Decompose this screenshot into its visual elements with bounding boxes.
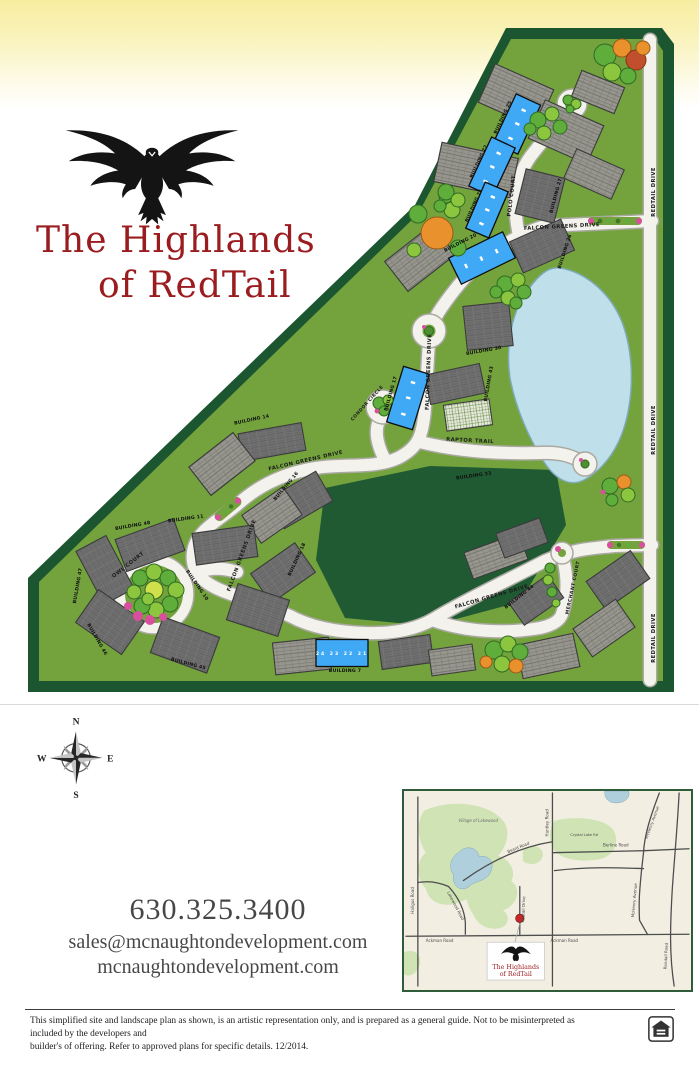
compass-south-label: S [73, 791, 78, 800]
phone-number: 630.325.3400 [18, 893, 418, 927]
contact-block: 630.325.3400 sales@mcnaughtondevelopment… [18, 893, 418, 979]
inset-label-ackman-east: Ackman Road [551, 938, 579, 943]
website-url[interactable]: mcnaughtondevelopment.com [18, 956, 418, 979]
title-line1: The Highlands [36, 220, 316, 261]
inset-label-huntley: Huntley Road [545, 809, 550, 837]
title-line2: of RedTail [36, 263, 366, 308]
inset-callout: The Highlands of RedTail [487, 942, 544, 980]
street-label-redtail-2: REDTAIL DRIVE [651, 405, 657, 455]
compass-rose-icon: N E S W [36, 712, 116, 800]
sales-email[interactable]: sales@mcnaughtondevelopment.com [18, 931, 418, 954]
label-building-7: BUILDING 7 [329, 668, 361, 674]
disclaimer-line1: This simplified site and landscape plan … [30, 1015, 590, 1041]
disclaimer-text: This simplified site and landscape plan … [30, 1015, 590, 1054]
inset-label-haligus: Haligus Road [410, 887, 415, 914]
site-plan-map: 24 23 22 21 [0, 0, 699, 704]
disclaimer-line2: builder's of offering. Refer to approved… [30, 1041, 590, 1054]
eagle-logo-icon [58, 118, 243, 226]
location-inset-map: Village of Lakewood Huntley Road Beard R… [402, 789, 693, 992]
inset-label-crystal-lake: Crystal Lake Rd [570, 833, 598, 837]
section-divider [0, 704, 699, 705]
building7-unit-numbers: 24 23 22 21 [316, 651, 368, 657]
inset-callout-line2: of RedTail [500, 970, 532, 978]
inset-callout-line1: The Highlands [492, 963, 539, 971]
footer-rule [25, 1009, 675, 1010]
compass-east-label: E [107, 755, 113, 765]
compass-north-label: N [73, 718, 80, 728]
flyer-page: { "brand": { "title_line1": "The Highlan… [0, 0, 699, 1080]
inset-label-village: Village of Lakewood [458, 818, 498, 823]
compass-west-label: W [37, 755, 47, 765]
inset-label-redtail: Redtail Drive [520, 896, 526, 923]
inset-label-berline: Berline Road [603, 843, 629, 848]
page-title: The Highlands of RedTail [36, 218, 366, 308]
equal-housing-icon [648, 1016, 674, 1042]
inset-label-ackman-west: Ackman Road [426, 938, 454, 943]
street-label-redtail-3: REDTAIL DRIVE [651, 613, 657, 663]
street-label-redtail-1: REDTAIL DRIVE [651, 167, 657, 217]
